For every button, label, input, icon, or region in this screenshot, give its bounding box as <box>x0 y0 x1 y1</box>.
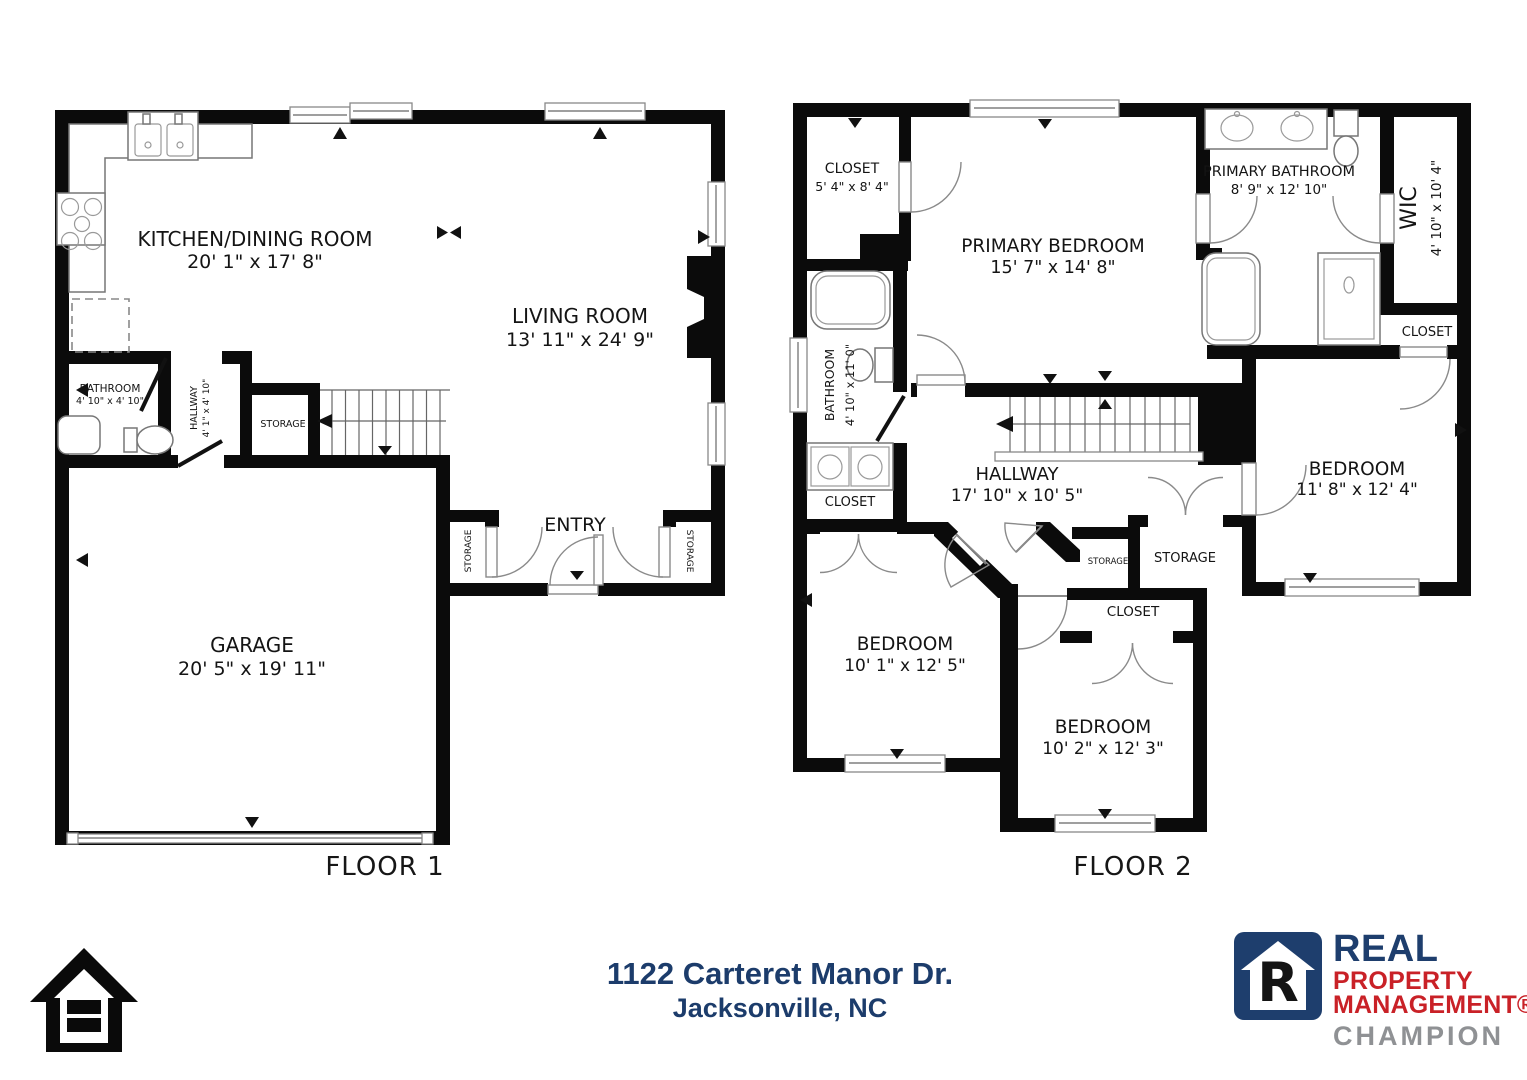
living-room-dims: 13' 11" x 24' 9" <box>506 329 654 351</box>
bedroom-right-dims: 11' 8" x 12' 4" <box>1296 480 1418 500</box>
floor2-plan: CLOSET 5' 4" x 8' 4" PRIMARY BEDROOM 15'… <box>780 90 1495 875</box>
storage-big-label: STORAGE <box>1154 551 1216 566</box>
bathroom1-dims: 4' 10" x 4' 10" <box>76 396 144 407</box>
rpm-line-champion: CHAMPION <box>1333 1021 1527 1051</box>
rpm-logo-text: REAL PROPERTY MANAGEMENT® CHAMPION <box>1333 932 1527 1051</box>
wic-dims: 4' 10" x 10' 4" <box>1429 160 1445 257</box>
floor2-stairs <box>995 397 1203 461</box>
equal-housing-icon <box>28 946 140 1054</box>
hallway2-label: HALLWAY <box>976 464 1060 485</box>
rpm-line-management: MANAGEMENT® <box>1333 993 1527 1017</box>
rpm-logo-letter: R <box>1257 951 1299 1014</box>
closet-tl-label: CLOSET <box>825 161 880 177</box>
floor1-title: FLOOR 1 <box>275 852 495 882</box>
rpm-line-property: PROPERTY <box>1333 969 1527 993</box>
storage-small-label: STORAGE <box>1088 557 1128 567</box>
closet-tl-dims: 5' 4" x 8' 4" <box>815 179 888 194</box>
kitchen-dims: 20' 1" x 17' 8" <box>187 251 323 273</box>
primary-bedroom-dims: 15' 7" x 14' 8" <box>990 258 1115 278</box>
wic-label: WIC <box>1397 186 1422 230</box>
property-address: 1122 Carteret Manor Dr. Jacksonville, NC <box>430 956 1130 1024</box>
hallway2-dims: 17' 10" x 10' 5" <box>951 486 1083 506</box>
floor1-windows <box>67 103 725 844</box>
bedroom-bottom-label: BEDROOM <box>1055 717 1152 738</box>
bathroom2-label: BATHROOM <box>822 349 837 421</box>
closet-mid-label: CLOSET <box>1107 604 1160 620</box>
kitchen-label: KITCHEN/DINING ROOM <box>137 227 372 251</box>
floor1-stairs <box>317 390 450 455</box>
living-room-label: LIVING ROOM <box>512 304 648 328</box>
garage-label: GARAGE <box>210 633 294 657</box>
bathroom2-dims: 4' 10" x 11' 0" <box>843 344 857 426</box>
bedroom-right-label: BEDROOM <box>1309 459 1406 480</box>
entry-storage-left-label: STORAGE <box>464 529 474 572</box>
hallway1-dims: 4' 1" x 4' 10" <box>202 379 212 438</box>
rpm-logo: R REAL PROPERTY MANAGEMENT® CHAMPION <box>1234 932 1527 1051</box>
bathroom1-fixtures <box>58 416 173 454</box>
hallway1-label: HALLWAY <box>189 386 200 430</box>
address-line2: Jacksonville, NC <box>430 992 1130 1024</box>
entry-label: ENTRY <box>544 514 606 536</box>
primary-bathroom-dims: 8' 9" x 12' 10" <box>1231 182 1328 198</box>
bedroom-left-dims: 10' 1" x 12' 5" <box>844 656 966 676</box>
storage1-label: STORAGE <box>260 419 305 430</box>
entry-storage-right-label: STORAGE <box>684 530 694 573</box>
rpm-logo-icon: R <box>1234 932 1322 1020</box>
rpm-line-real: REAL <box>1333 932 1527 966</box>
closet-wic-label: CLOSET <box>1402 325 1453 340</box>
floorplan-page: KITCHEN/DINING ROOM 20' 1" x 17' 8" LIVI… <box>0 0 1527 1080</box>
floor2-title: FLOOR 2 <box>1023 852 1243 882</box>
primary-bedroom-label: PRIMARY BEDROOM <box>961 236 1145 257</box>
bedroom-left-label: BEDROOM <box>857 634 954 655</box>
bedroom-bottom-dims: 10' 2" x 12' 3" <box>1042 739 1164 759</box>
floor1-doors <box>141 358 670 594</box>
closet-left-label: CLOSET <box>825 495 876 510</box>
bathroom1-label: BATHROOM <box>80 383 141 395</box>
address-line1: 1122 Carteret Manor Dr. <box>430 956 1130 992</box>
garage-dims: 20' 5" x 19' 11" <box>178 658 326 680</box>
floor1-walls <box>55 110 725 845</box>
floor1-plan: KITCHEN/DINING ROOM 20' 1" x 17' 8" LIVI… <box>40 95 740 880</box>
primary-bathroom-label: PRIMARY BATHROOM <box>1203 164 1355 180</box>
